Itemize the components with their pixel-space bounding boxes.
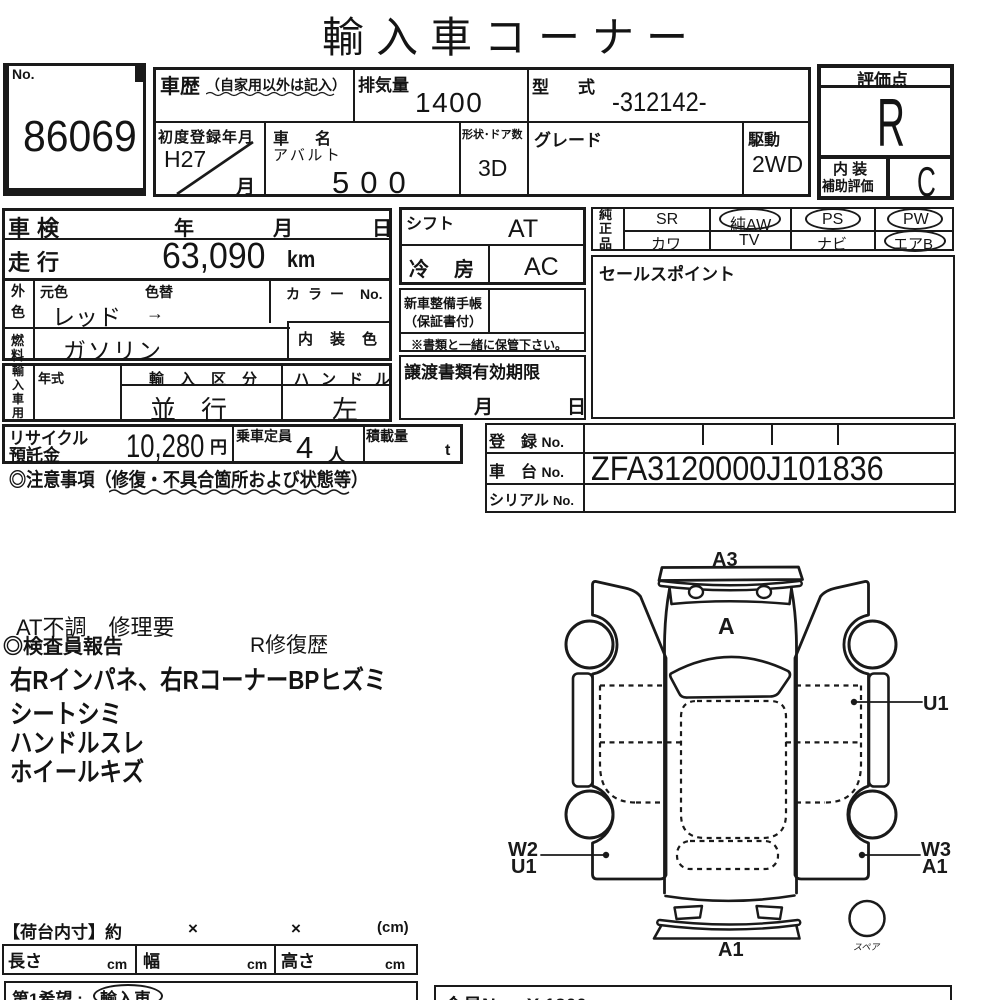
svg-text:U1: U1 [511,856,537,878]
svg-text:A: A [718,613,735,639]
svg-text:U1: U1 [923,693,949,715]
svg-text:A3: A3 [712,549,738,571]
svg-text:A1: A1 [718,939,744,961]
svg-text:A1: A1 [922,856,948,878]
svg-text:スペア: スペア [853,942,880,952]
